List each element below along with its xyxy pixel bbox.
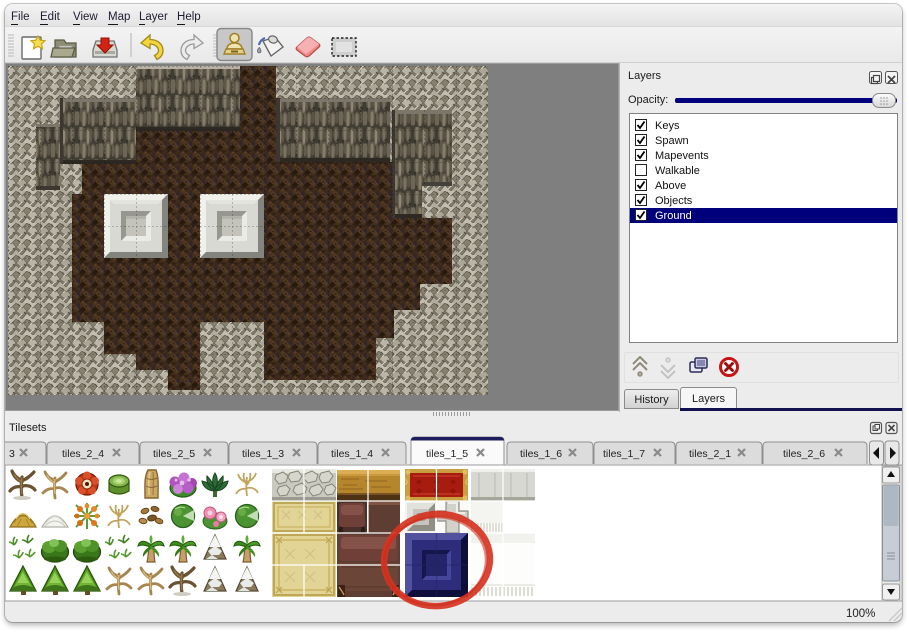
svg-text:tiles_2_4: tiles_2_4	[62, 448, 104, 460]
svg-text:tiles_1_3: tiles_1_3	[242, 448, 284, 460]
svg-text:Tilesets: Tilesets	[9, 422, 47, 434]
svg-text:3: 3	[9, 448, 15, 460]
svg-text:100%: 100%	[846, 608, 875, 620]
svg-text:tiles_1_7: tiles_1_7	[603, 448, 645, 460]
svg-text:tiles_1_4: tiles_1_4	[331, 448, 373, 460]
svg-text:tiles_1_6: tiles_1_6	[520, 448, 562, 460]
svg-text:tiles_2_5: tiles_2_5	[153, 448, 195, 460]
svg-text:tiles_2_1: tiles_2_1	[689, 448, 731, 460]
svg-text:tiles_1_5: tiles_1_5	[426, 448, 468, 460]
svg-text:tiles_2_6: tiles_2_6	[783, 448, 825, 460]
